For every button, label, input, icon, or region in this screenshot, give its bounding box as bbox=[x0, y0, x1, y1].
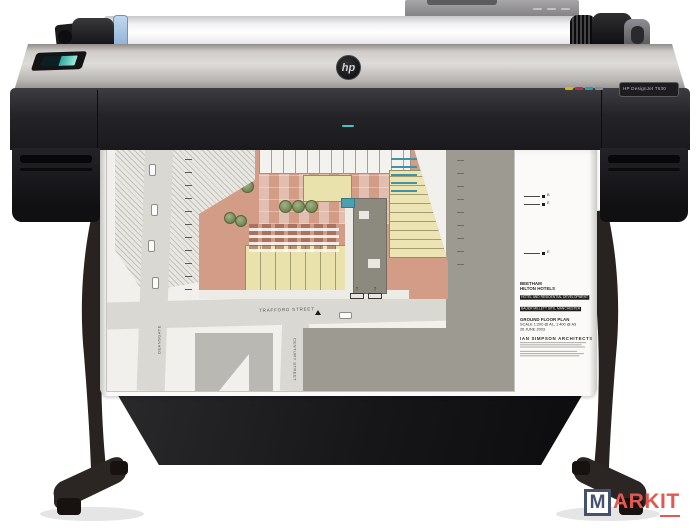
building-corridor bbox=[345, 200, 353, 292]
hp-logo: hp bbox=[336, 55, 361, 80]
hp-logo-text: hp bbox=[342, 62, 355, 74]
building-pool bbox=[341, 198, 355, 208]
ink-color-dashes bbox=[565, 87, 603, 90]
car-symbol bbox=[149, 164, 156, 176]
address-line bbox=[520, 346, 585, 347]
building-table-rows bbox=[249, 224, 339, 252]
street-label-century: CENTURY STREET bbox=[293, 338, 298, 381]
building-louvers bbox=[391, 152, 417, 192]
section-marker: E bbox=[524, 201, 552, 208]
markit-watermark-logo: M ARKIT bbox=[584, 489, 680, 517]
model-badge: HP DesignJet T630 bbox=[619, 82, 679, 97]
stand-foot-left bbox=[54, 457, 126, 509]
building-rooms-yellow-bottom bbox=[245, 245, 347, 296]
stand-foot-pad-left bbox=[57, 498, 81, 515]
stand-foot-rear-left bbox=[110, 461, 128, 475]
car-symbol bbox=[339, 312, 352, 319]
printer-front-band bbox=[10, 88, 690, 150]
side-module-right bbox=[600, 148, 688, 222]
markit-wordmark: ARKIT bbox=[613, 489, 680, 517]
control-panel-screen bbox=[31, 51, 88, 71]
markit-ark: ARK bbox=[613, 489, 660, 517]
vent-slot bbox=[608, 155, 680, 163]
title-block: BEETHAM HILTON HOTELS HOTEL AND RESIDENT… bbox=[520, 281, 597, 356]
title-architect: IAN SIMPSON ARCHITECTS bbox=[520, 336, 597, 341]
panel-seam bbox=[97, 90, 98, 148]
building-core bbox=[353, 198, 387, 294]
title-subtitle: HOTEL AND RESIDENTIAL DEVELOPMENT bbox=[520, 295, 589, 299]
north-triangle bbox=[315, 310, 321, 315]
vent-slot bbox=[20, 168, 92, 171]
vent-slot bbox=[608, 168, 680, 171]
rear-panel-mark bbox=[533, 8, 542, 10]
tree-symbol bbox=[305, 200, 318, 213]
spindle-hub-right-cap bbox=[631, 26, 644, 44]
catch-basket bbox=[105, 390, 595, 465]
stand-foot-rear-right bbox=[572, 461, 590, 475]
section-marker: E bbox=[524, 250, 552, 257]
panel-seam bbox=[601, 90, 602, 148]
plan-grid-ticks-left bbox=[185, 146, 192, 302]
ink-dash-magenta bbox=[575, 87, 583, 90]
car-symbol bbox=[148, 240, 155, 252]
lcd-display bbox=[40, 55, 78, 66]
sheet-curl-left bbox=[100, 138, 108, 396]
sheet-curl-right bbox=[589, 138, 597, 396]
model-badge-text: HP DesignJet T630 bbox=[623, 86, 679, 91]
rear-panel-mark bbox=[561, 8, 570, 10]
street-label-deansgate: DEANSGATE bbox=[157, 325, 162, 354]
ink-dash-yellow bbox=[565, 87, 573, 90]
rear-panel-mark bbox=[547, 8, 556, 10]
lcd-teal-area bbox=[58, 55, 77, 66]
section-marker: B bbox=[524, 193, 552, 200]
product-photo-hp-designjet: ↑ ↑ TRAFFORD STREET CENTURY STREET DEANS… bbox=[0, 0, 700, 528]
ink-dash-cyan bbox=[585, 87, 593, 90]
rear-tray-handle-recess bbox=[427, 0, 497, 5]
entrance-arrow: ↑ bbox=[350, 286, 364, 299]
tree-symbol bbox=[279, 200, 292, 213]
address-line bbox=[520, 342, 586, 343]
markit-it-underlined: IT bbox=[660, 489, 680, 517]
car-symbol bbox=[151, 204, 158, 216]
status-led-dash bbox=[342, 125, 354, 127]
ink-dash-gray bbox=[595, 87, 603, 90]
tree-symbol bbox=[235, 215, 247, 227]
vent-slot bbox=[20, 155, 92, 163]
title-site: BAUER MILLETT SITE, MANCHESTER bbox=[520, 307, 581, 311]
tree-symbol bbox=[292, 200, 305, 213]
floor-plan-drawing: ↑ ↑ TRAFFORD STREET CENTURY STREET DEANS… bbox=[106, 141, 515, 392]
address-line bbox=[520, 353, 584, 354]
title-date: 26 JUNE 2003 bbox=[520, 327, 597, 332]
spindle-hub-left-knob bbox=[58, 30, 72, 44]
markit-m-square: M bbox=[584, 489, 611, 516]
side-module-left bbox=[12, 148, 100, 222]
entrance-arrow: ↑ bbox=[368, 286, 382, 299]
car-symbol bbox=[152, 277, 159, 289]
output-sheet: ↑ ↑ TRAFFORD STREET CENTURY STREET DEANS… bbox=[100, 138, 597, 396]
address-line bbox=[520, 355, 579, 356]
address-line bbox=[520, 344, 582, 345]
address-line bbox=[520, 351, 577, 352]
plan-grid-ticks-right bbox=[457, 147, 464, 267]
